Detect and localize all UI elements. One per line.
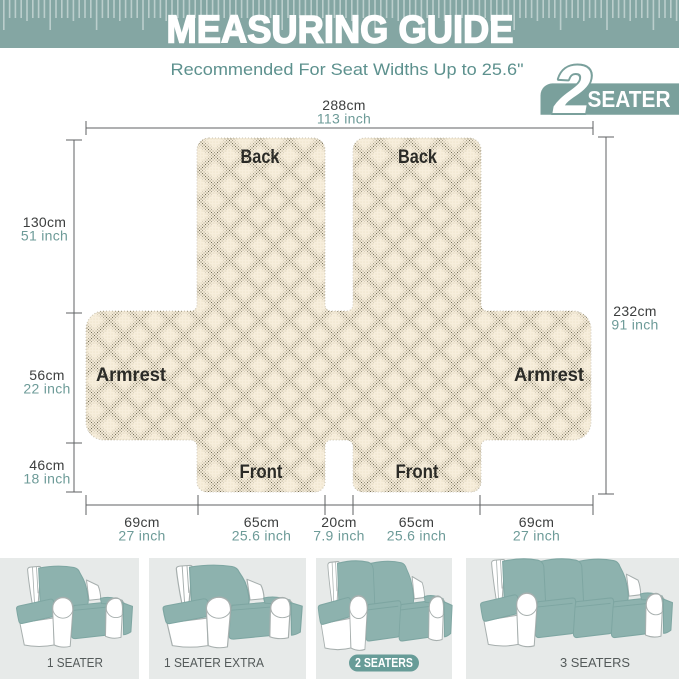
svg-text:18 inch: 18 inch [23, 471, 70, 487]
svg-text:Back: Back [398, 147, 437, 168]
svg-text:Front: Front [240, 462, 284, 483]
svg-text:25.6 inch: 25.6 inch [387, 528, 447, 544]
svg-text:Armrest: Armrest [96, 365, 167, 386]
svg-text:Front: Front [396, 462, 440, 483]
svg-text:Back: Back [241, 147, 280, 168]
svg-text:91 inch: 91 inch [611, 317, 658, 333]
svg-text:3 SEATERS: 3 SEATERS [560, 656, 630, 670]
svg-text:Armrest: Armrest [514, 365, 585, 386]
svg-text:22 inch: 22 inch [23, 381, 70, 397]
svg-text:51 inch: 51 inch [21, 228, 68, 244]
svg-text:2 SEATERS: 2 SEATERS [355, 656, 413, 670]
svg-text:1 SEATER EXTRA: 1 SEATER EXTRA [164, 656, 265, 670]
svg-text:1 SEATER: 1 SEATER [47, 656, 103, 670]
svg-text:MEASURING GUIDE: MEASURING GUIDE [167, 9, 514, 52]
svg-text:27 inch: 27 inch [513, 528, 560, 544]
svg-text:113 inch: 113 inch [317, 111, 371, 127]
svg-text:27 inch: 27 inch [118, 528, 165, 544]
svg-text:25.6 inch: 25.6 inch [232, 528, 292, 544]
svg-text:Recommended For Seat Widths Up: Recommended For Seat Widths Up to 25.6" [171, 60, 524, 79]
svg-text:7.9 inch: 7.9 inch [313, 528, 364, 544]
svg-text:SEATER: SEATER [588, 86, 671, 112]
